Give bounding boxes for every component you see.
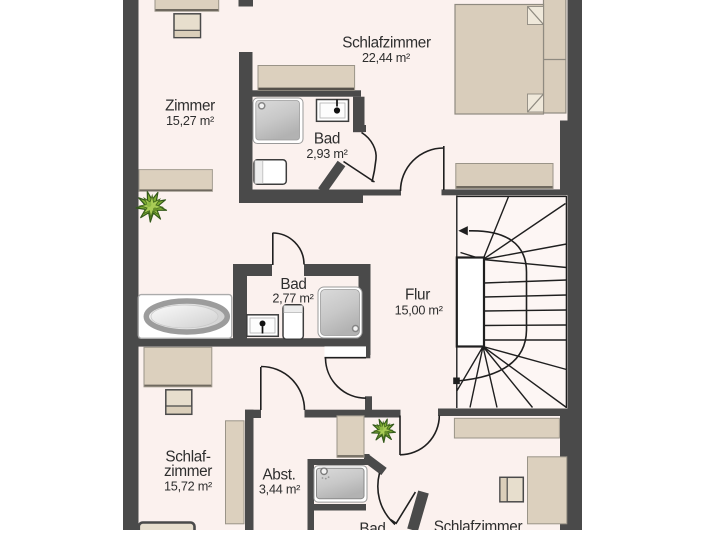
svg-text:3,44 m²: 3,44 m² <box>259 483 300 497</box>
svg-text:2,77 m²: 2,77 m² <box>272 292 313 306</box>
svg-text:2,93 m²: 2,93 m² <box>306 147 347 161</box>
svg-text:22,44 m²: 22,44 m² <box>362 51 410 65</box>
svg-text:15,00 m²: 15,00 m² <box>395 304 443 318</box>
svg-text:Schlafzimmer: Schlafzimmer <box>342 35 431 52</box>
svg-text:15,72 m²: 15,72 m² <box>164 480 212 494</box>
svg-text:Schlafzimmer: Schlafzimmer <box>434 519 523 531</box>
svg-text:zimmer: zimmer <box>164 463 212 480</box>
svg-text:Flur: Flur <box>405 287 430 304</box>
svg-text:Bad: Bad <box>280 276 306 293</box>
svg-text:Bad: Bad <box>314 131 340 148</box>
svg-text:Abst.: Abst. <box>262 467 295 484</box>
svg-text:Bad: Bad <box>359 521 385 531</box>
svg-text:15,27 m²: 15,27 m² <box>166 114 214 128</box>
svg-text:Zimmer: Zimmer <box>165 98 215 115</box>
